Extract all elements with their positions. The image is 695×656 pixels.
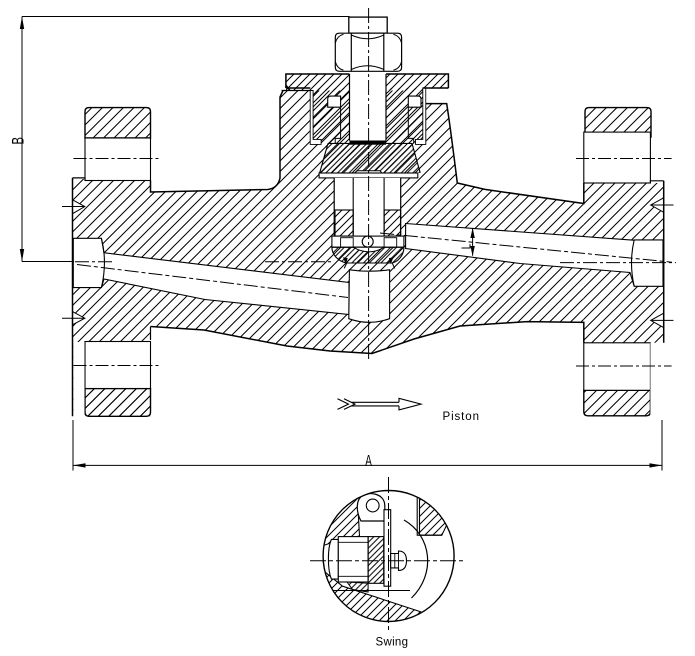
svg-text:Piston: Piston [443, 411, 480, 423]
svg-text:B: B [9, 137, 28, 144]
svg-text:A: A [365, 452, 372, 470]
svg-text:L: L [460, 244, 474, 249]
svg-text:Swing: Swing [376, 637, 409, 649]
